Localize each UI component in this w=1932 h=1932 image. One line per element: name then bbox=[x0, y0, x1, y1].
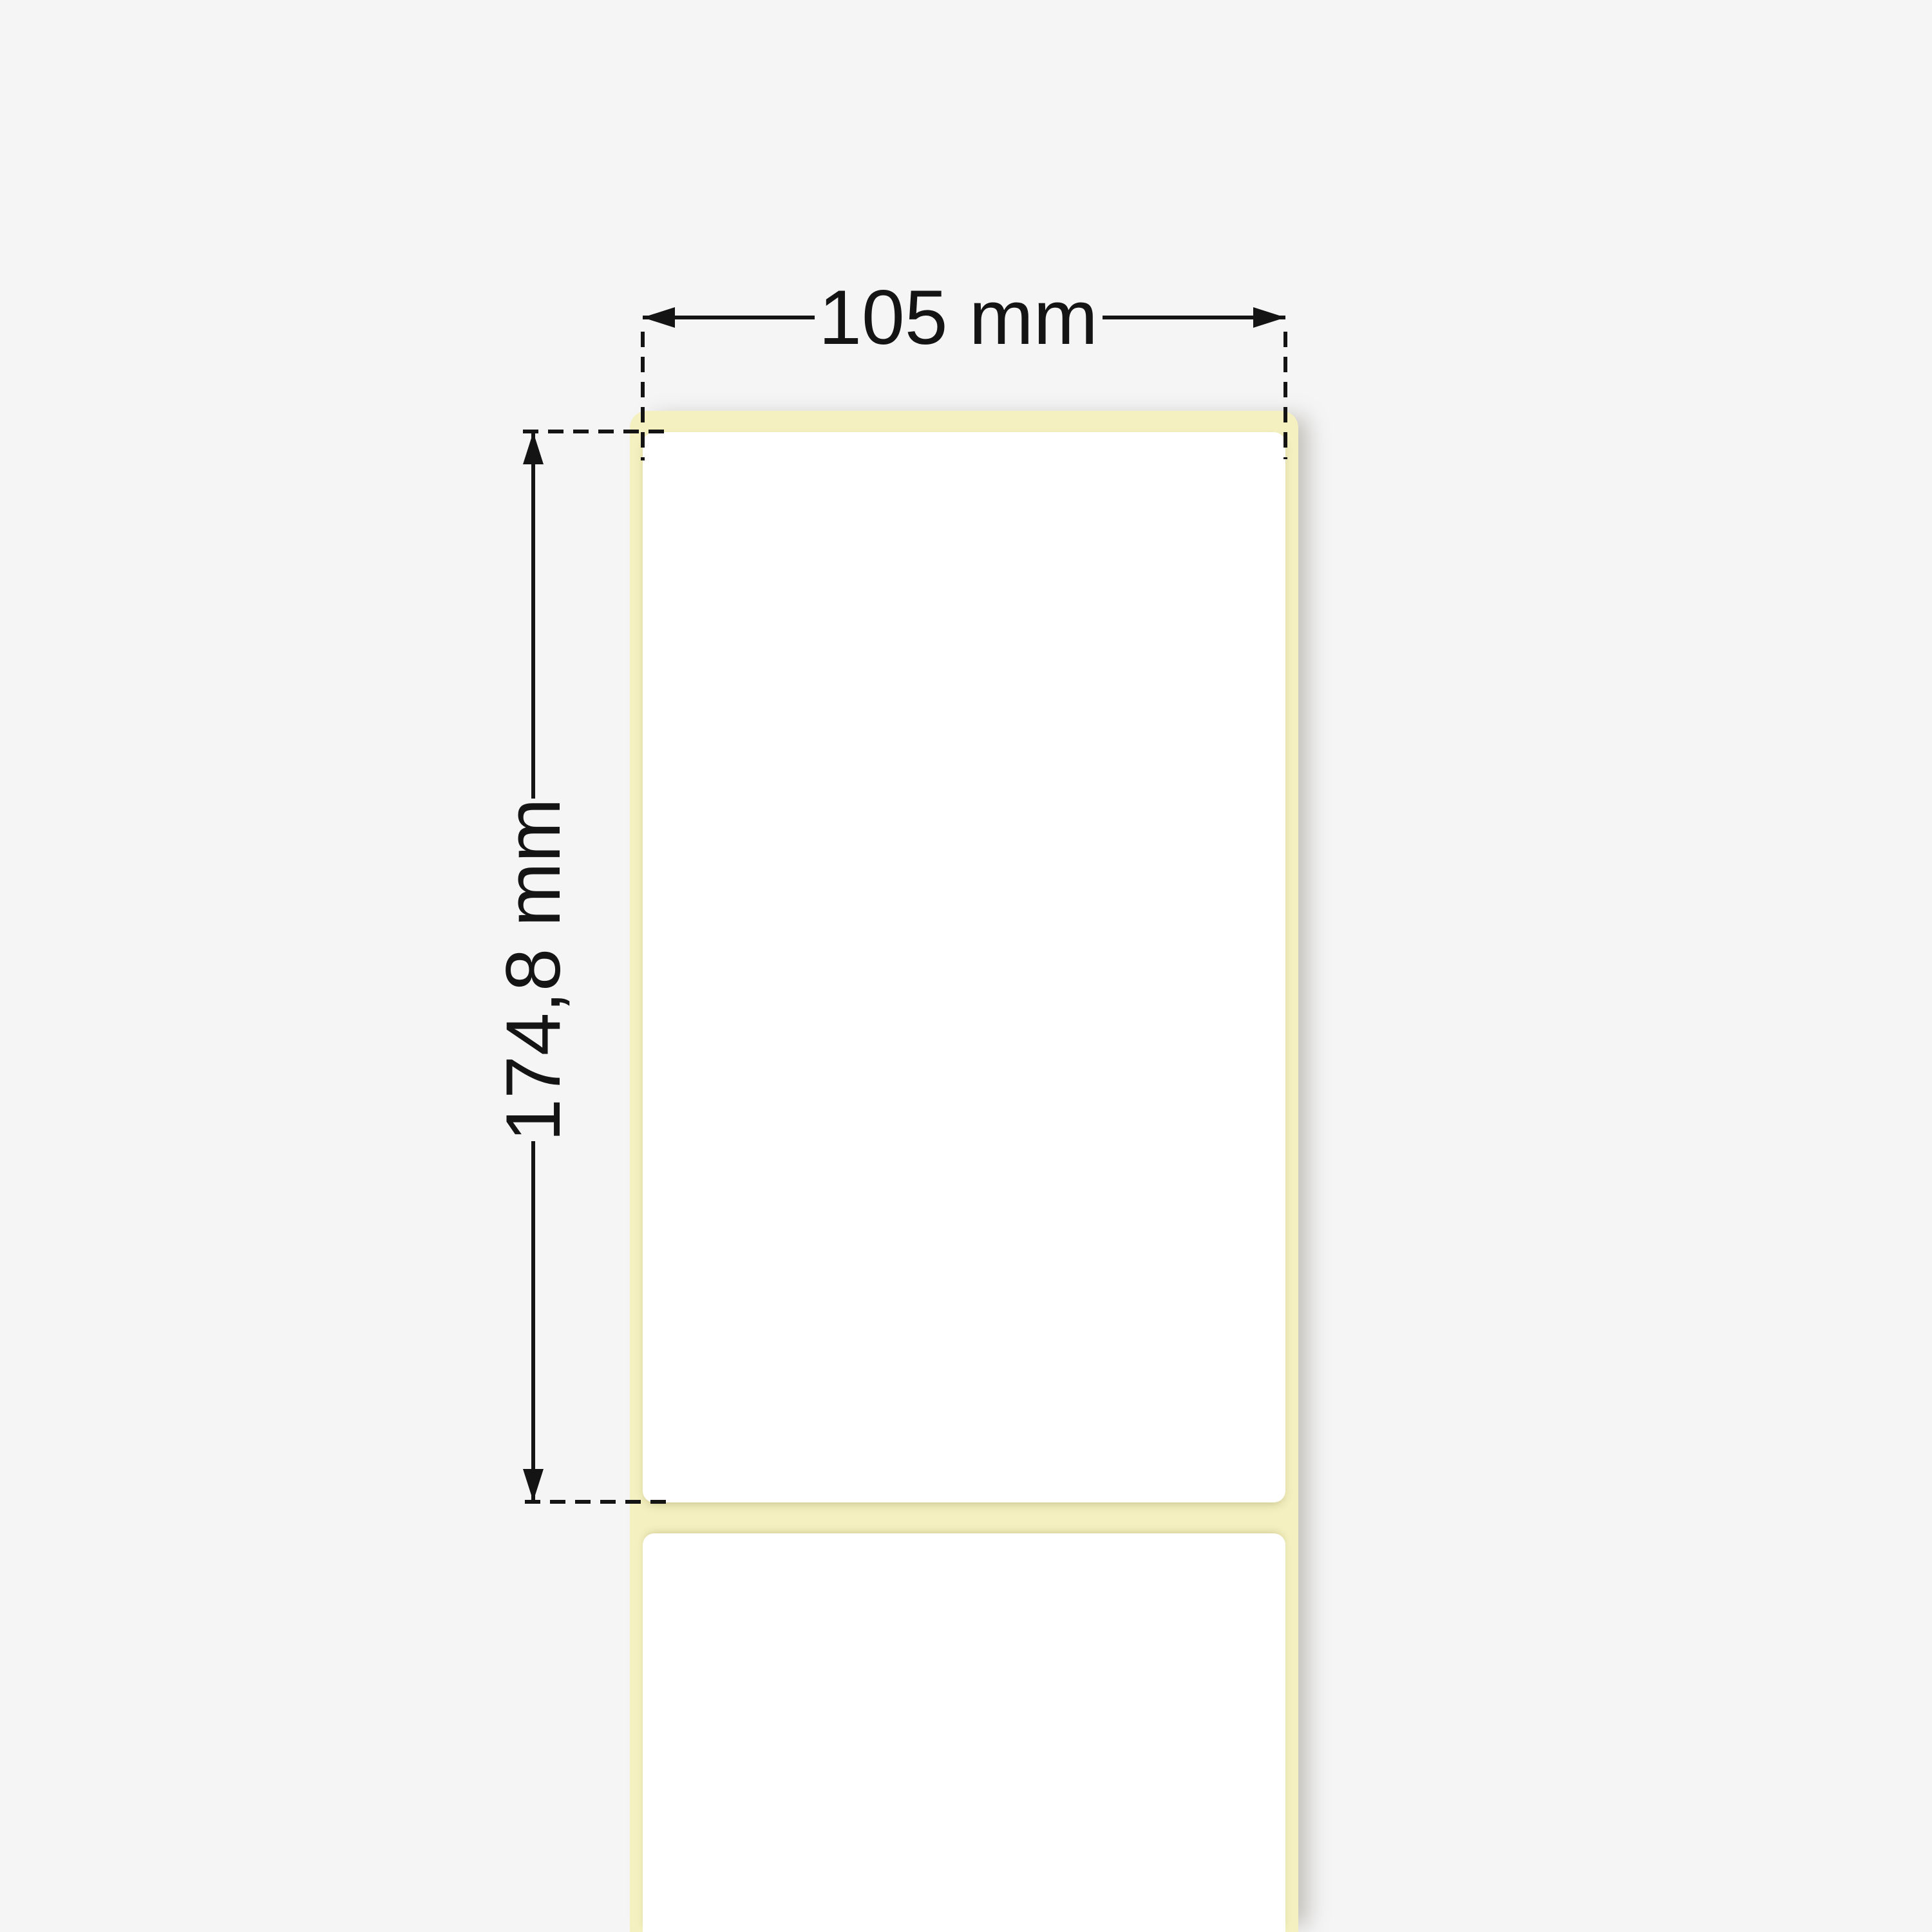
arrowhead-right-icon bbox=[1253, 307, 1285, 328]
dimension-annotations: 105 mm 174,8 mm bbox=[0, 0, 1932, 1932]
arrowhead-up-icon bbox=[523, 432, 544, 464]
height-dimension-value: 174,8 mm bbox=[490, 798, 576, 1142]
arrowhead-down-icon bbox=[523, 1469, 544, 1501]
arrowhead-left-icon bbox=[643, 307, 675, 328]
height-dimension: 174,8 mm bbox=[490, 431, 670, 1502]
width-dimension-value: 105 mm bbox=[819, 274, 1097, 361]
label-roll-diagram: 105 mm 174,8 mm bbox=[0, 0, 1932, 1932]
width-dimension: 105 mm bbox=[643, 274, 1285, 460]
